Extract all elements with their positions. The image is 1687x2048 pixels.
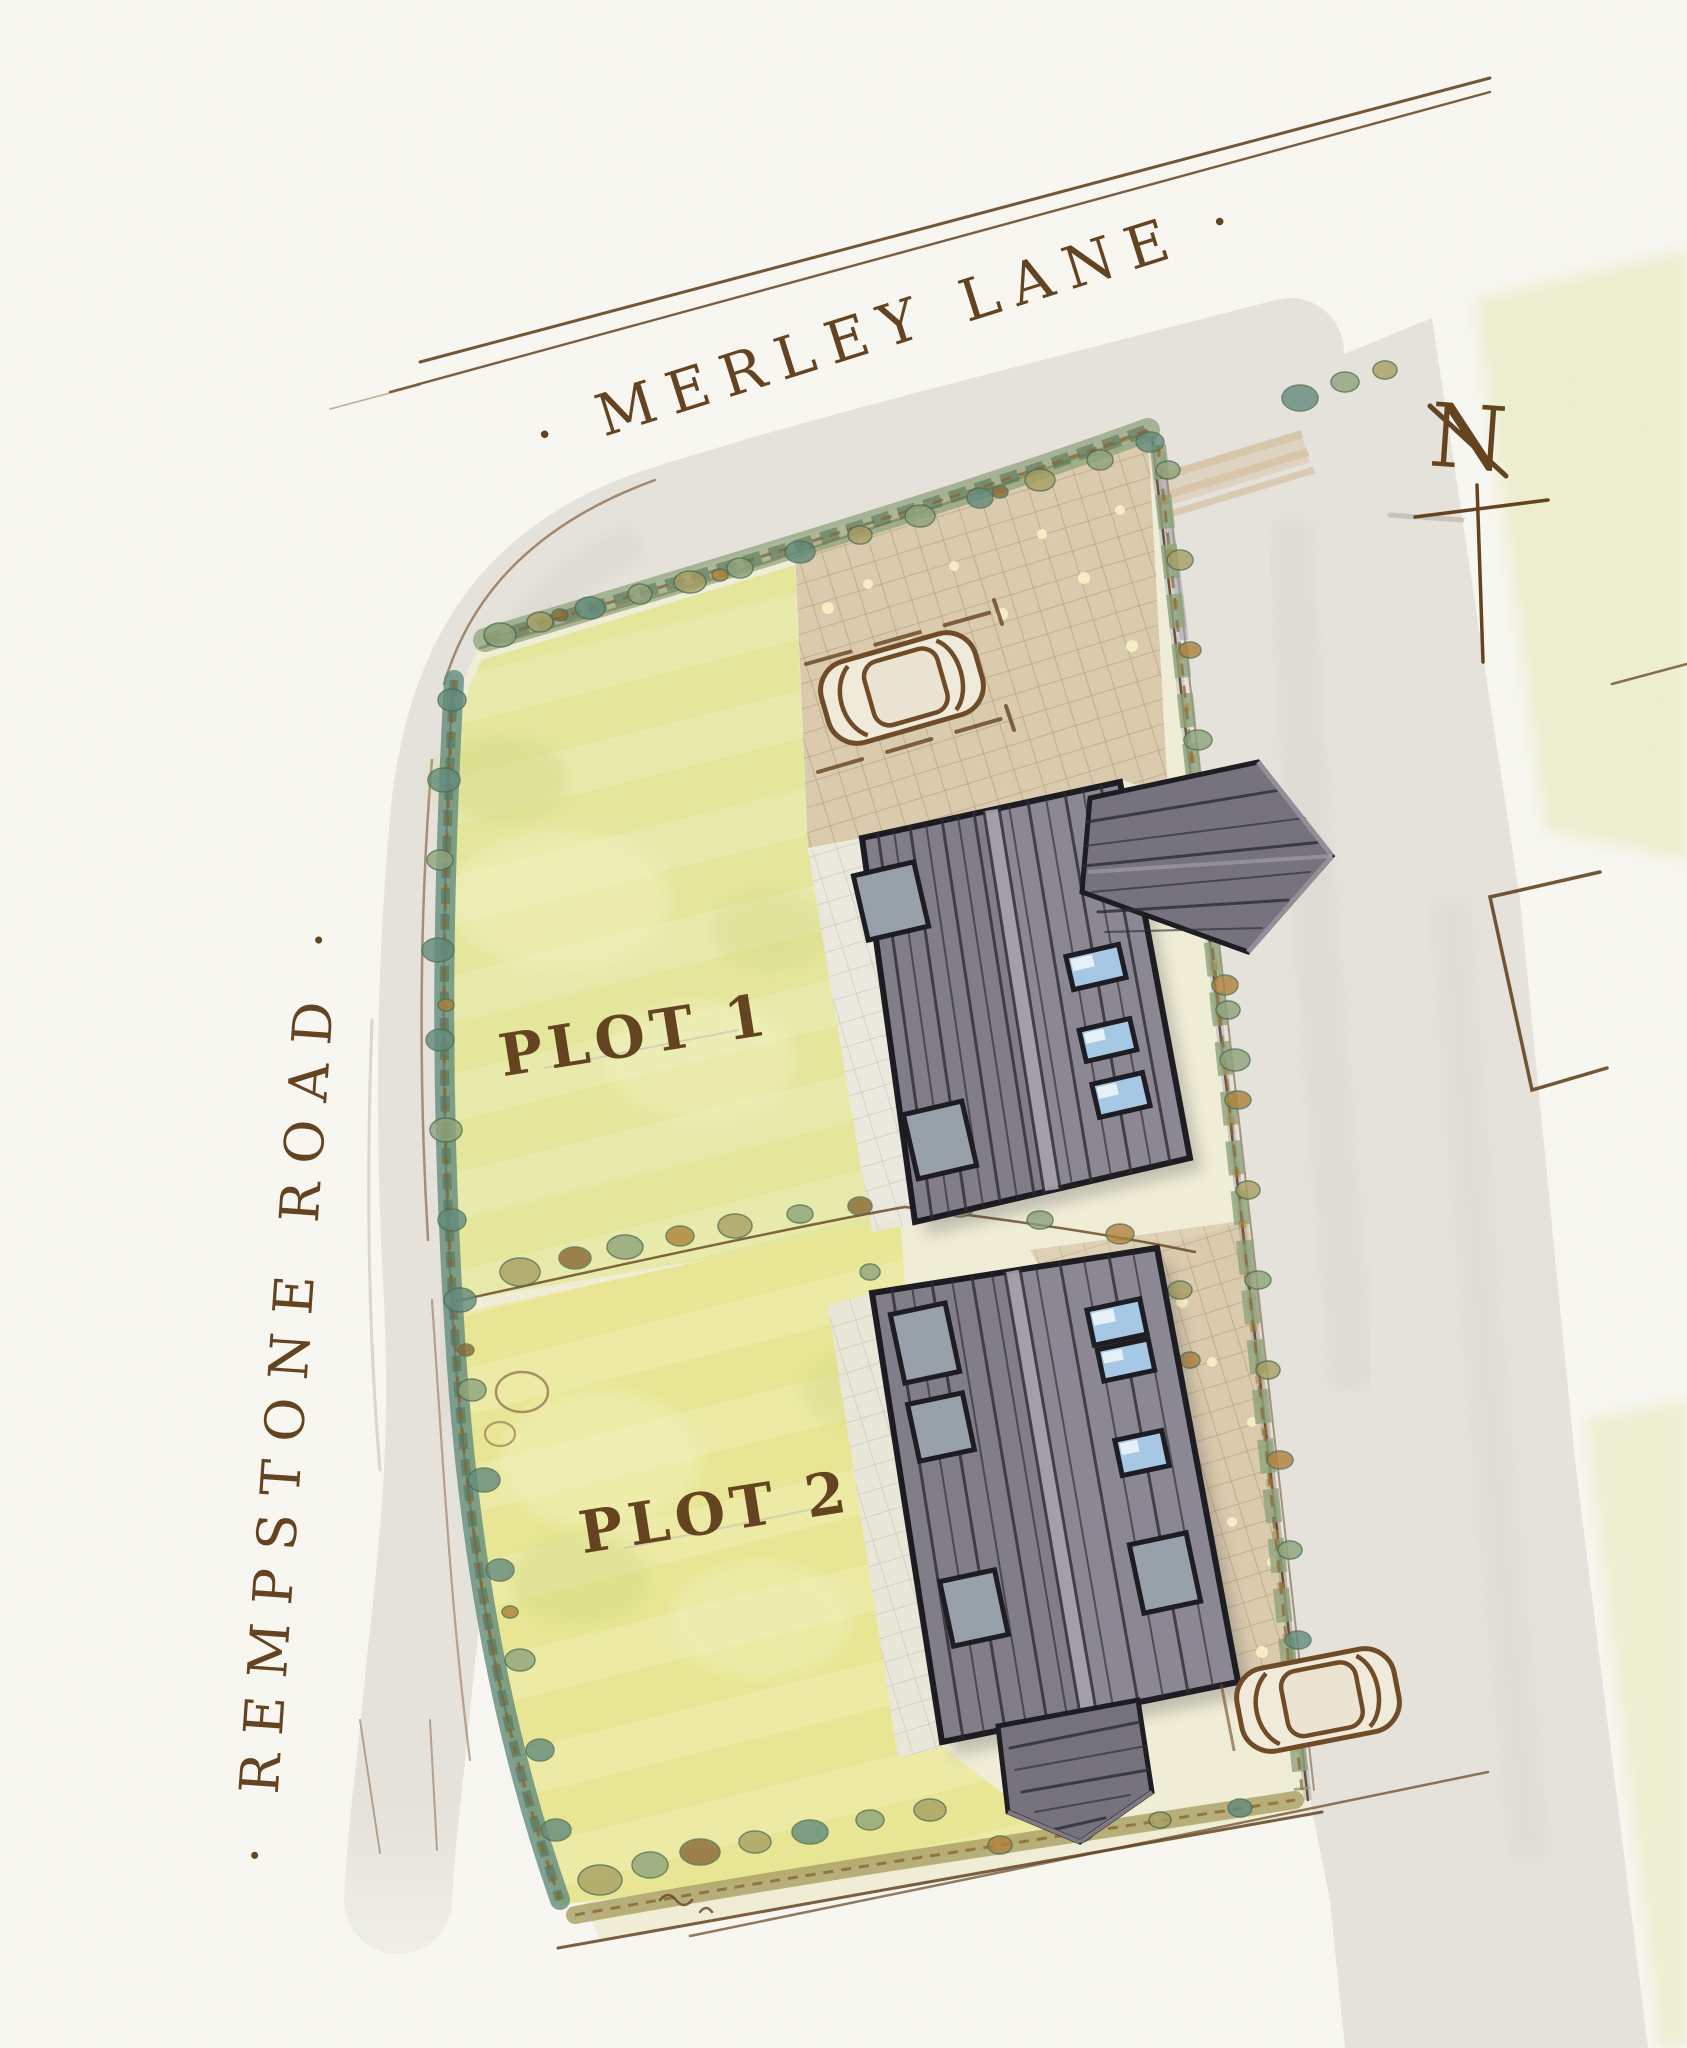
site-plan-canvas: · MERLEY LANE · · REMPSTONE ROAD · PLOT … [0,0,1687,2048]
paper-grain-texture [0,0,1687,2048]
site-plan-drawing: · MERLEY LANE · · REMPSTONE ROAD · PLOT … [0,0,1687,2048]
